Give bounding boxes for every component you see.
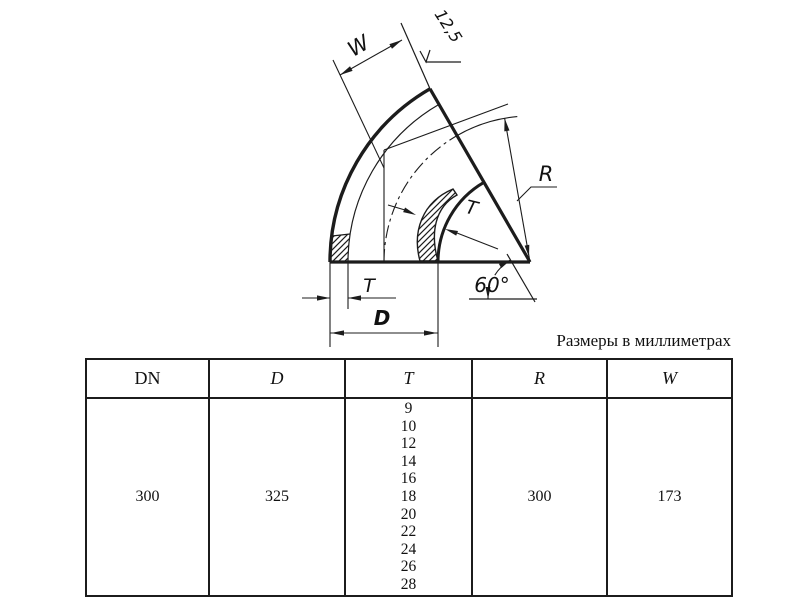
w-label: W (344, 30, 375, 62)
t-mid-arrow-right (445, 229, 458, 236)
table-header-row: DN D T R W (86, 359, 732, 398)
roughness-check-icon (420, 50, 430, 62)
r-arrow-top (504, 118, 509, 131)
w-arrow-right (389, 40, 402, 49)
cell-d: 325 (209, 398, 345, 596)
standard-document-page: W 12,5 R T 60° T (0, 0, 800, 600)
table-row: 300 325 9 10 12 14 16 18 20 22 24 26 28 … (86, 398, 732, 596)
t-bottom-label: T (363, 275, 376, 297)
column-header-d: D (209, 359, 345, 398)
angle-label: 60° (474, 273, 509, 297)
wall-crescent-section (417, 189, 457, 261)
roughness-value: 12,5 (431, 6, 466, 46)
cell-t-values: 9 10 12 14 16 18 20 22 24 26 28 (345, 398, 472, 596)
t-bottom-arrow-left (317, 295, 330, 300)
w-extension-line (333, 60, 384, 168)
inclined-face-extension (401, 23, 430, 89)
t-mid-label: T (463, 196, 481, 220)
elbow-technical-drawing: W 12,5 R T 60° T (0, 0, 800, 356)
cell-w: 173 (607, 398, 732, 596)
r-leader-line (517, 187, 557, 201)
t-bottom-arrow-right (348, 295, 361, 300)
column-header-r: R (472, 359, 607, 398)
column-header-dn: DN (86, 359, 209, 398)
units-caption: Размеры в миллиметрах (400, 331, 731, 351)
dimensions-table: DN D T R W 300 325 9 10 12 14 16 18 20 2… (85, 358, 733, 597)
r-label: R (539, 162, 554, 186)
cell-r: 300 (472, 398, 607, 596)
t-mid-arrow-left (403, 208, 416, 216)
column-header-w: W (607, 359, 732, 398)
t-mid-leader-left (388, 205, 405, 210)
t-mid-leader-right (457, 233, 498, 249)
near-wall-section-hatch (330, 234, 350, 262)
d-label: D (374, 306, 391, 330)
d-arrow-left (331, 330, 344, 335)
cell-dn: 300 (86, 398, 209, 596)
column-header-t: T (345, 359, 472, 398)
w-arrow-left (340, 66, 353, 75)
